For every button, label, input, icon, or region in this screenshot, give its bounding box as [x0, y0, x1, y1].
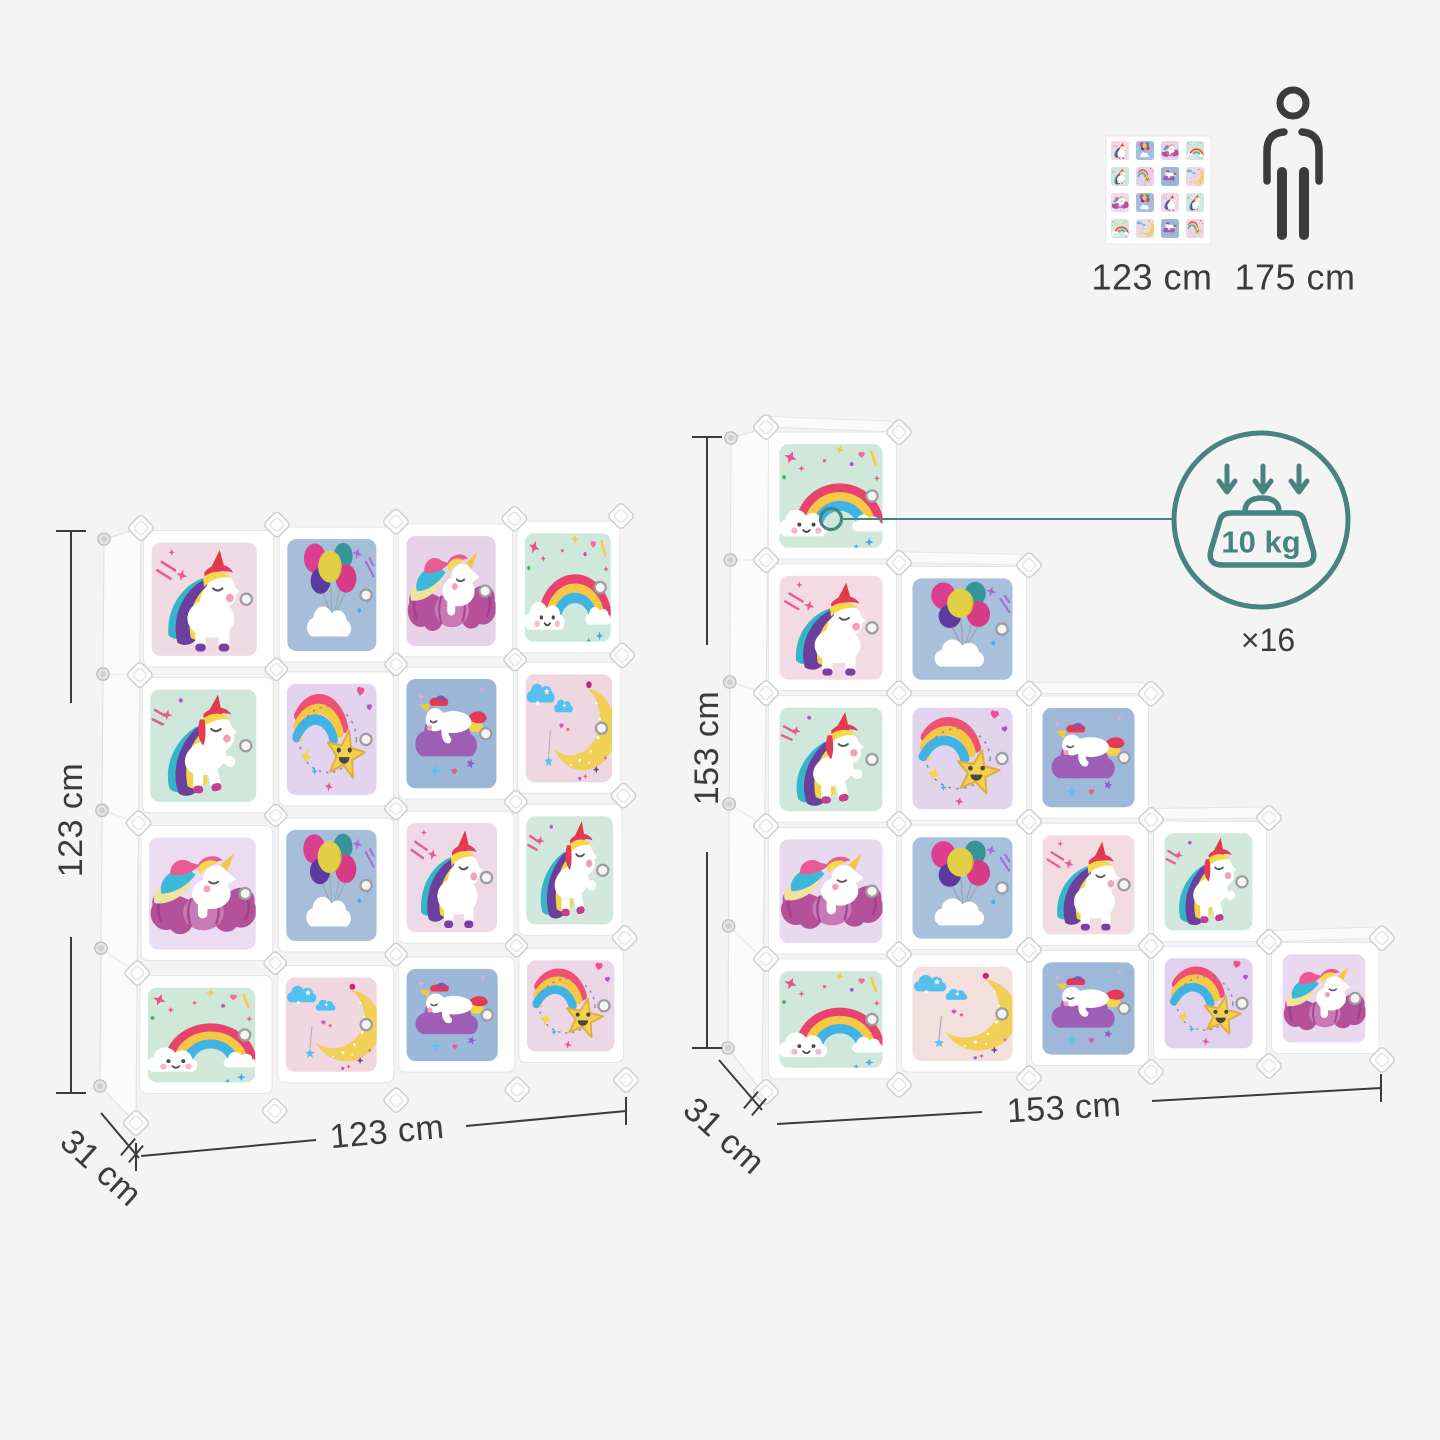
svg-text:10 kg: 10 kg — [1221, 525, 1300, 560]
svg-text:175 cm: 175 cm — [1234, 257, 1355, 298]
svg-text:153 cm: 153 cm — [1006, 1086, 1123, 1131]
svg-text:123 cm: 123 cm — [1091, 257, 1212, 298]
svg-text:153 cm: 153 cm — [688, 691, 726, 806]
svg-text:123 cm: 123 cm — [52, 763, 90, 878]
svg-text:×16: ×16 — [1241, 622, 1295, 658]
